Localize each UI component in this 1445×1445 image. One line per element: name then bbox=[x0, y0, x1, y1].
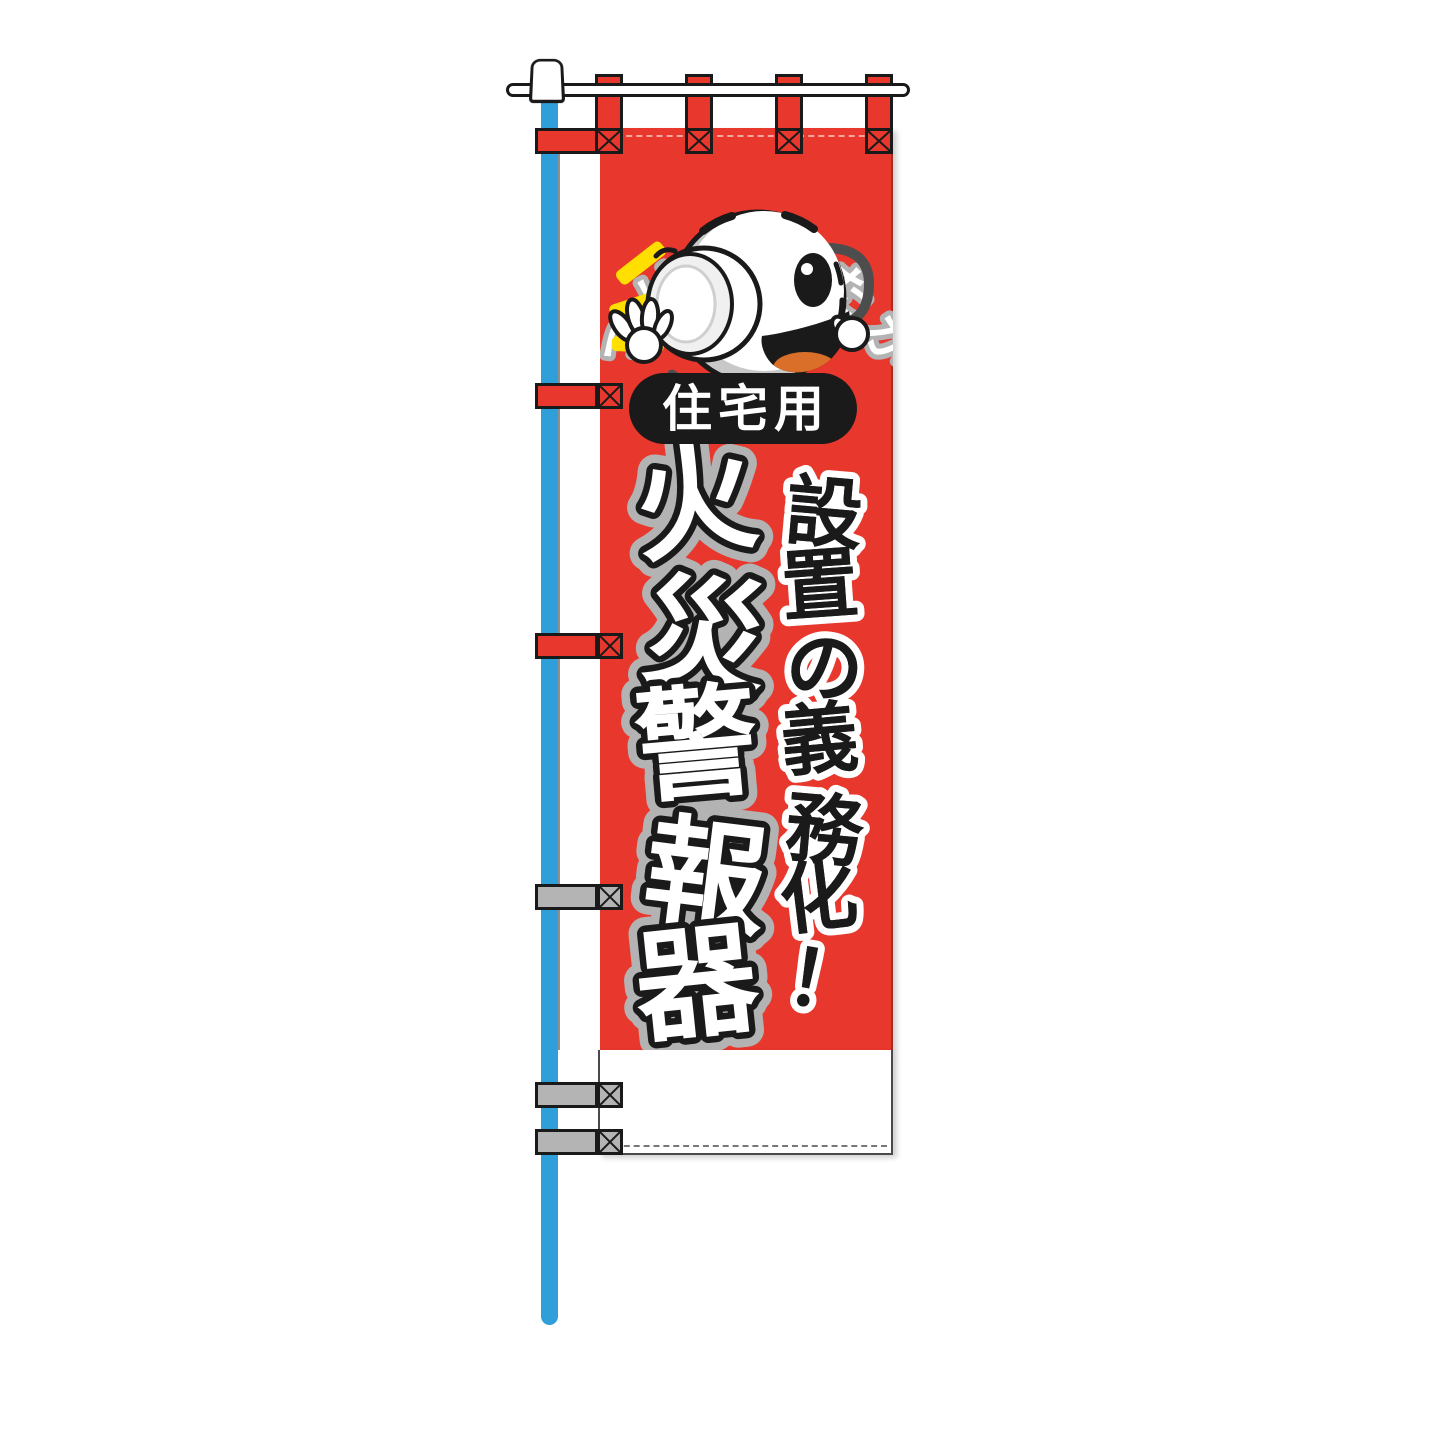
sub-title-vertical: 設置の義務化！ 設置の義務化！ bbox=[775, 467, 872, 1034]
smoke-detector-mascot-icon bbox=[606, 211, 869, 384]
svg-text:火災警報器: 火災警報器 bbox=[624, 423, 775, 1050]
pole-strap-red bbox=[535, 633, 598, 659]
stitch-x-box bbox=[597, 1082, 623, 1108]
horizontal-bar bbox=[506, 83, 910, 97]
stitch-x-box bbox=[685, 128, 713, 154]
svg-text:設置の義務化！: 設置の義務化！ bbox=[775, 467, 872, 1034]
pole-strap-red bbox=[535, 128, 598, 154]
pole-cap bbox=[529, 59, 565, 103]
stitch-x-box bbox=[597, 1129, 623, 1155]
stitch-x-box bbox=[595, 128, 623, 154]
banner-artwork: つけましたか？ bbox=[600, 128, 893, 1050]
stitch-x-box bbox=[597, 383, 623, 409]
pole-strap-red bbox=[535, 383, 598, 409]
eye-icon bbox=[794, 253, 832, 307]
pole-strap-gray bbox=[535, 1082, 598, 1108]
pole-strap-gray bbox=[535, 1129, 598, 1155]
pole-strap-gray bbox=[535, 884, 598, 910]
usage-badge: 住宅用 bbox=[629, 373, 857, 444]
usage-badge-label: 住宅用 bbox=[656, 384, 830, 434]
banner-left-white-band bbox=[558, 128, 600, 1050]
stitch-x-box bbox=[597, 884, 623, 910]
stitch-x-box bbox=[865, 128, 893, 154]
stitch-x-box bbox=[597, 633, 623, 659]
main-title-vertical: 火災警報器 火災警報器 bbox=[624, 423, 775, 1050]
banner-bottom-white-hem bbox=[598, 1050, 893, 1155]
stitch-x-box bbox=[775, 128, 803, 154]
product-image-nobori-banner: 住宅用 つけましたか？ bbox=[0, 0, 1445, 1445]
